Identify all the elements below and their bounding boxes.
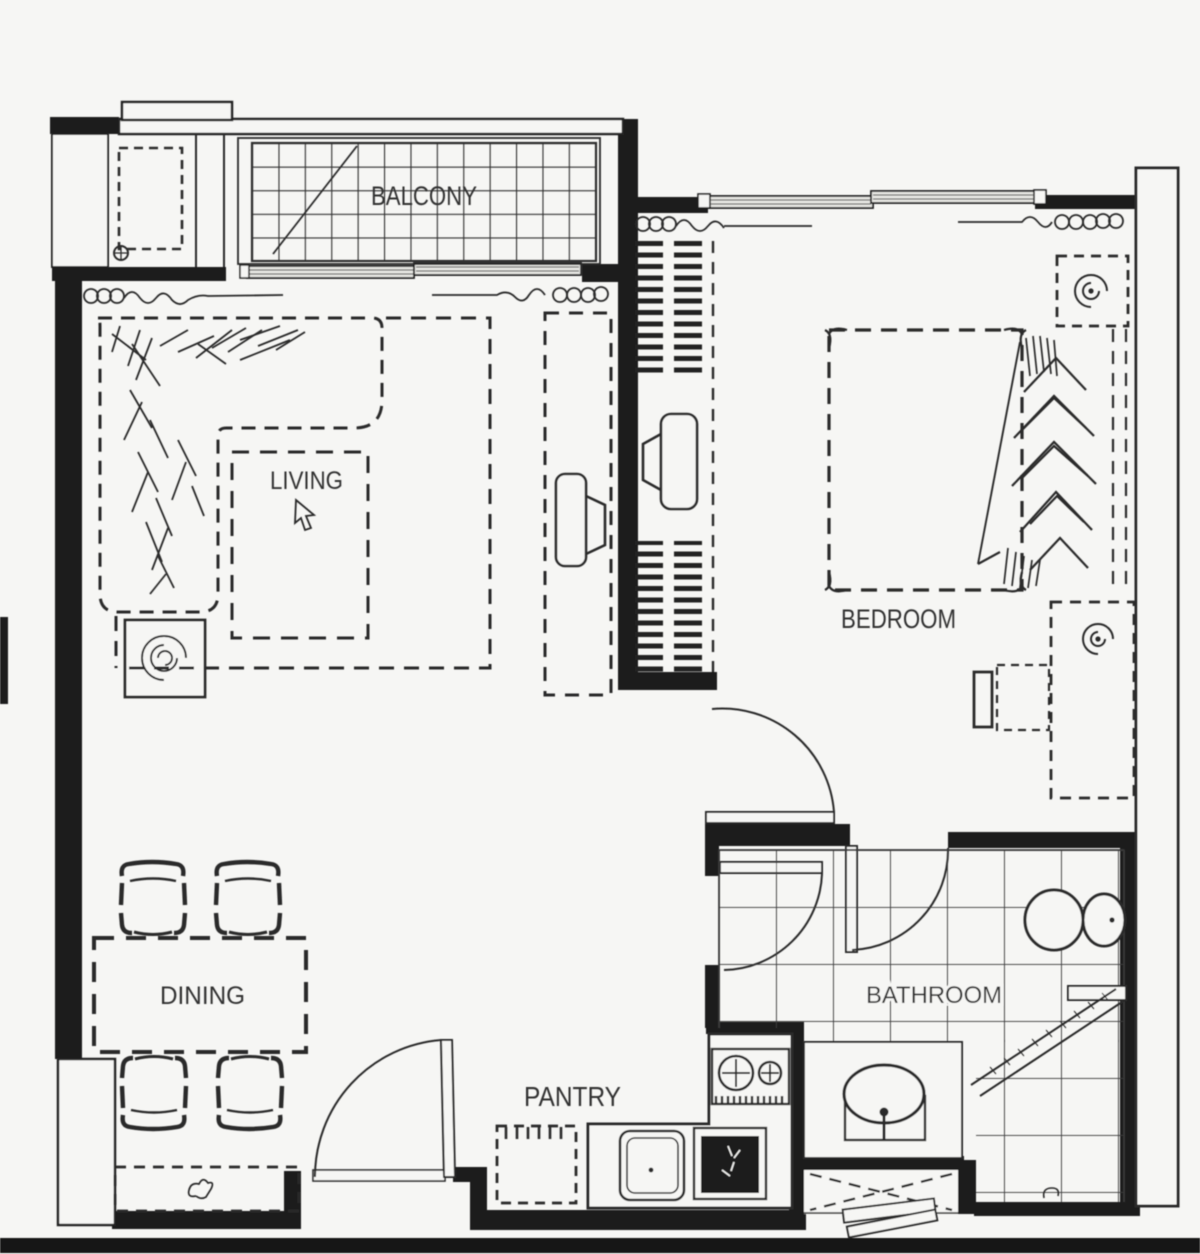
svg-text:LIVING: LIVING bbox=[270, 467, 343, 495]
svg-text:PANTRY: PANTRY bbox=[524, 1081, 621, 1112]
svg-text:BEDROOM: BEDROOM bbox=[841, 604, 956, 634]
svg-text:BATHROOM: BATHROOM bbox=[866, 982, 1002, 1009]
svg-text:DINING: DINING bbox=[160, 982, 245, 1010]
svg-text:BALCONY: BALCONY bbox=[371, 181, 477, 211]
